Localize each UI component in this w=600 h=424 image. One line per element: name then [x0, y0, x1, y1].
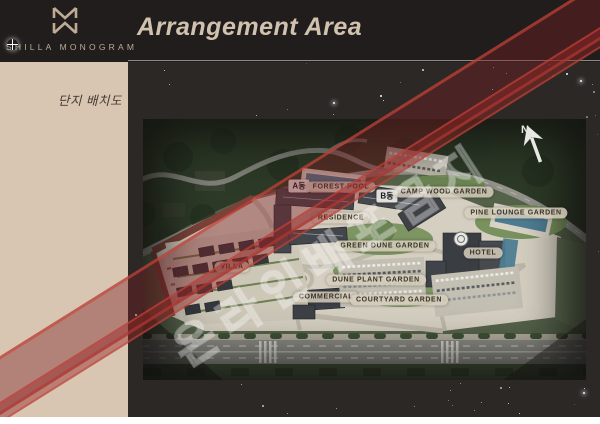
- star-dot: [400, 82, 401, 83]
- map-label-courtyard-garden: COURTYARD GARDEN: [350, 295, 448, 306]
- map-label-pine-lounge-garden: PINE LOUNGE GARDEN: [464, 208, 567, 219]
- star-dot: [598, 251, 599, 252]
- star-dot: [336, 408, 337, 409]
- star-dot: [169, 84, 170, 85]
- star-dot: [256, 115, 257, 116]
- star-dot: [241, 384, 242, 385]
- slide-page: SHILLA MONOGRAM Arrangement Area 단지 배치도: [0, 0, 600, 424]
- star-bright: [580, 80, 582, 82]
- header-divider: [128, 60, 600, 61]
- star-dot: [383, 100, 384, 101]
- north-label: N: [521, 124, 529, 136]
- star-dot: [333, 114, 334, 115]
- star-dot: [597, 134, 598, 135]
- map-label-camp-wood-garden: CAMP WOOD GARDEN: [395, 187, 494, 198]
- star-dot: [519, 413, 520, 414]
- star-dot: [452, 405, 453, 406]
- star-bright: [583, 392, 585, 394]
- star-dot: [586, 116, 588, 118]
- star-dot: [474, 410, 475, 411]
- site-plan-map: A동B동FOREST POOLCAMP WOOD GARDENPINE LOUN…: [143, 119, 586, 380]
- slide-header: SHILLA MONOGRAM Arrangement Area: [0, 0, 600, 62]
- star-dot: [448, 400, 449, 401]
- star-dot: [508, 403, 509, 404]
- map-label-forest-pool: FOREST POOL: [307, 182, 376, 193]
- sparkle-glint: [7, 39, 18, 50]
- presentation-slide: SHILLA MONOGRAM Arrangement Area 단지 배치도: [0, 0, 600, 417]
- star-dot: [287, 109, 288, 110]
- map-label-dune-plant-garden: DUNE PLANT GARDEN: [326, 275, 426, 286]
- left-sidebar: 단지 배치도: [0, 62, 128, 417]
- monogram-logo-icon: [50, 7, 80, 34]
- star-dot: [135, 314, 137, 316]
- north-arrow-icon: N: [515, 121, 555, 167]
- star-dot: [380, 95, 382, 97]
- star-dot: [422, 69, 424, 71]
- star-dot: [500, 387, 502, 389]
- star-dot: [493, 67, 494, 68]
- star-dot: [506, 73, 507, 74]
- star-dot: [553, 75, 554, 76]
- brand-logo: SHILLA MONOGRAM: [6, 7, 124, 52]
- section-label-korean: 단지 배치도: [58, 90, 122, 109]
- star-dot: [552, 76, 553, 77]
- star-dot: [549, 64, 550, 65]
- map-label-hotel: HOTEL: [464, 248, 503, 259]
- star-dot: [592, 84, 593, 85]
- star-dot: [460, 383, 461, 384]
- star-dot: [481, 402, 482, 403]
- star-dot: [574, 404, 575, 405]
- star-dot: [306, 63, 307, 64]
- brand-name: SHILLA MONOGRAM: [6, 42, 124, 52]
- star-dot: [593, 91, 595, 93]
- map-label-villa: VILLA: [214, 262, 249, 273]
- star-dot: [566, 73, 568, 75]
- star-dot: [595, 115, 596, 116]
- star-dot: [287, 413, 288, 414]
- star-dot: [450, 390, 451, 391]
- page-title: Arrangement Area: [137, 13, 362, 42]
- star-bright: [333, 102, 335, 104]
- star-dot: [509, 387, 510, 388]
- map-label-residence: RESIDENCE: [312, 213, 370, 224]
- star-dot: [584, 388, 585, 389]
- star-dot: [262, 405, 264, 407]
- star-dot: [492, 89, 493, 90]
- star-dot: [164, 70, 165, 71]
- star-dot: [414, 406, 415, 407]
- map-label-green-dune-garden: GREEN DUNE GARDEN: [334, 241, 435, 252]
